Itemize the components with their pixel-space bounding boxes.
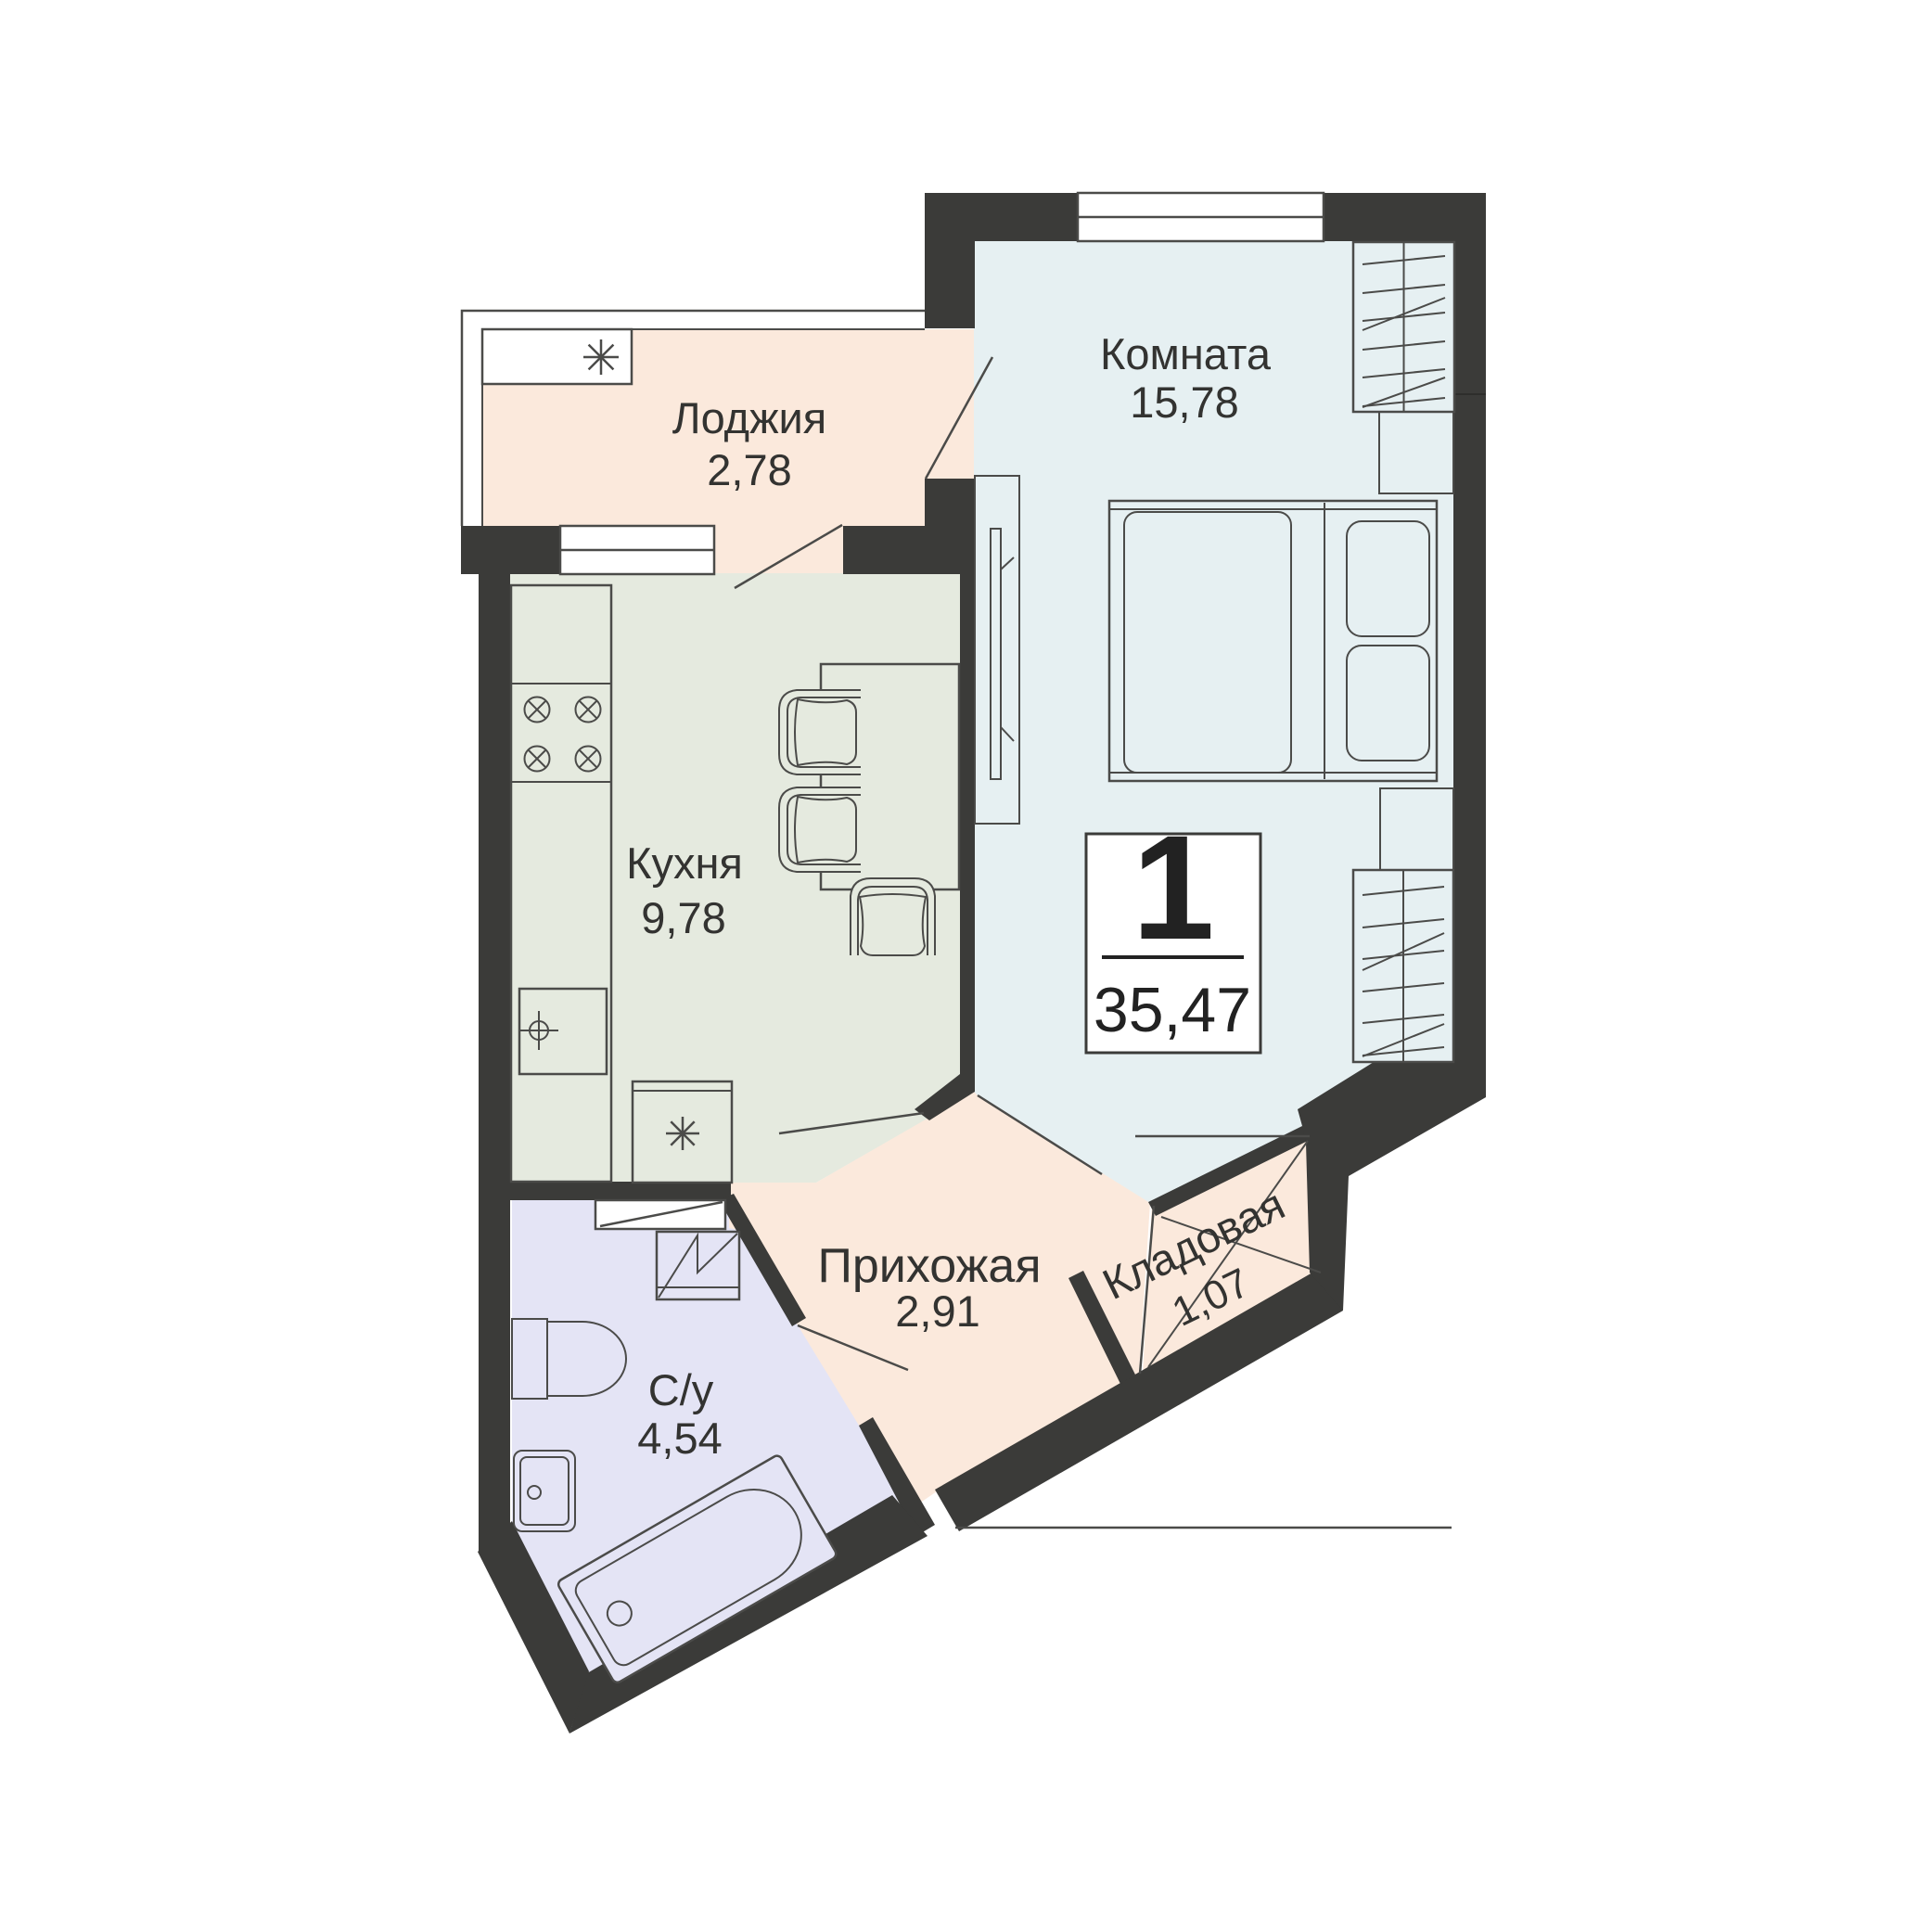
svg-text:С/у: С/у — [648, 1365, 714, 1414]
svg-text:1: 1 — [1132, 804, 1215, 970]
svg-text:9,78: 9,78 — [641, 893, 725, 942]
svg-text:Кухня: Кухня — [626, 838, 743, 888]
svg-text:15,78: 15,78 — [1130, 377, 1239, 427]
svg-text:Прихожая: Прихожая — [818, 1239, 1042, 1293]
svg-text:2,91: 2,91 — [895, 1286, 979, 1336]
svg-text:35,47: 35,47 — [1094, 975, 1251, 1045]
svg-text:Комната: Комната — [1100, 329, 1272, 378]
svg-text:Лоджия: Лоджия — [672, 393, 827, 442]
svg-text:4,54: 4,54 — [637, 1414, 722, 1463]
svg-text:2,78: 2,78 — [707, 445, 791, 494]
